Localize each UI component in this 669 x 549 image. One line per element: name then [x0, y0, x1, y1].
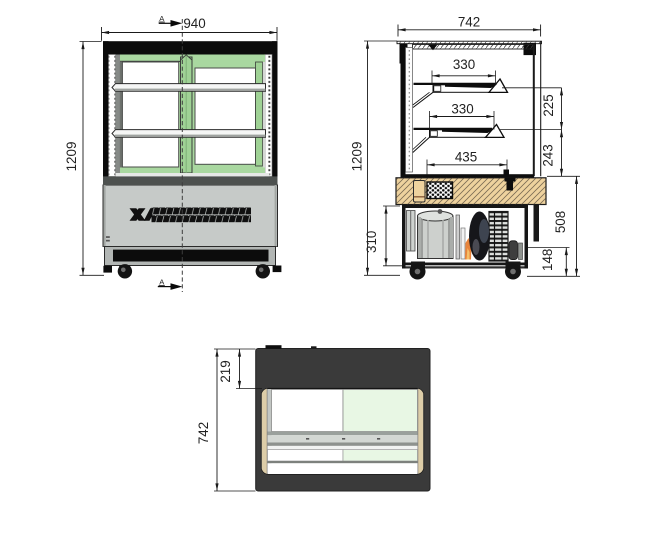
svg-text:330: 330: [451, 102, 473, 117]
svg-text:1209: 1209: [349, 142, 364, 172]
svg-text:219: 219: [218, 360, 233, 382]
svg-text:330: 330: [453, 57, 475, 72]
svg-text:940: 940: [183, 16, 205, 31]
svg-text:243: 243: [540, 144, 555, 166]
svg-text:310: 310: [364, 231, 379, 253]
svg-text:742: 742: [458, 15, 480, 30]
svg-text:435: 435: [455, 150, 477, 165]
svg-text:508: 508: [553, 211, 568, 233]
svg-text:148: 148: [540, 249, 555, 271]
svg-text:1209: 1209: [64, 142, 79, 172]
svg-text:742: 742: [196, 422, 211, 444]
svg-text:225: 225: [541, 94, 556, 116]
